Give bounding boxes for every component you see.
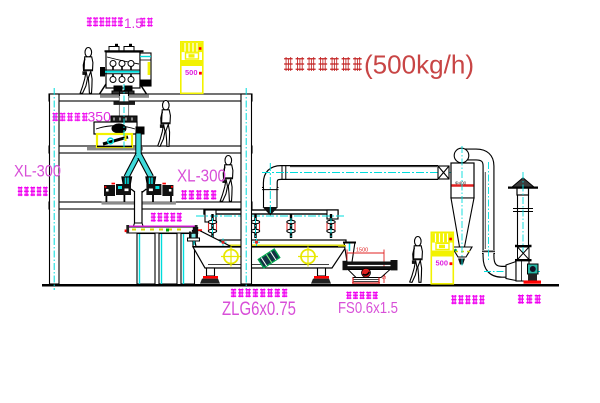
svg-text:XL-300: XL-300 <box>177 166 226 186</box>
svg-text:350: 350 <box>88 109 112 125</box>
svg-text:(500kg/h): (500kg/h) <box>364 50 474 80</box>
svg-text:Φ400: Φ400 <box>455 181 467 186</box>
svg-text:ZLG6x0.75: ZLG6x0.75 <box>222 299 296 320</box>
svg-text:1.5: 1.5 <box>124 16 143 31</box>
svg-text:FS0.6x1.5: FS0.6x1.5 <box>338 300 398 317</box>
svg-text:XL-300: XL-300 <box>14 162 61 181</box>
svg-text:1500: 1500 <box>356 248 368 254</box>
